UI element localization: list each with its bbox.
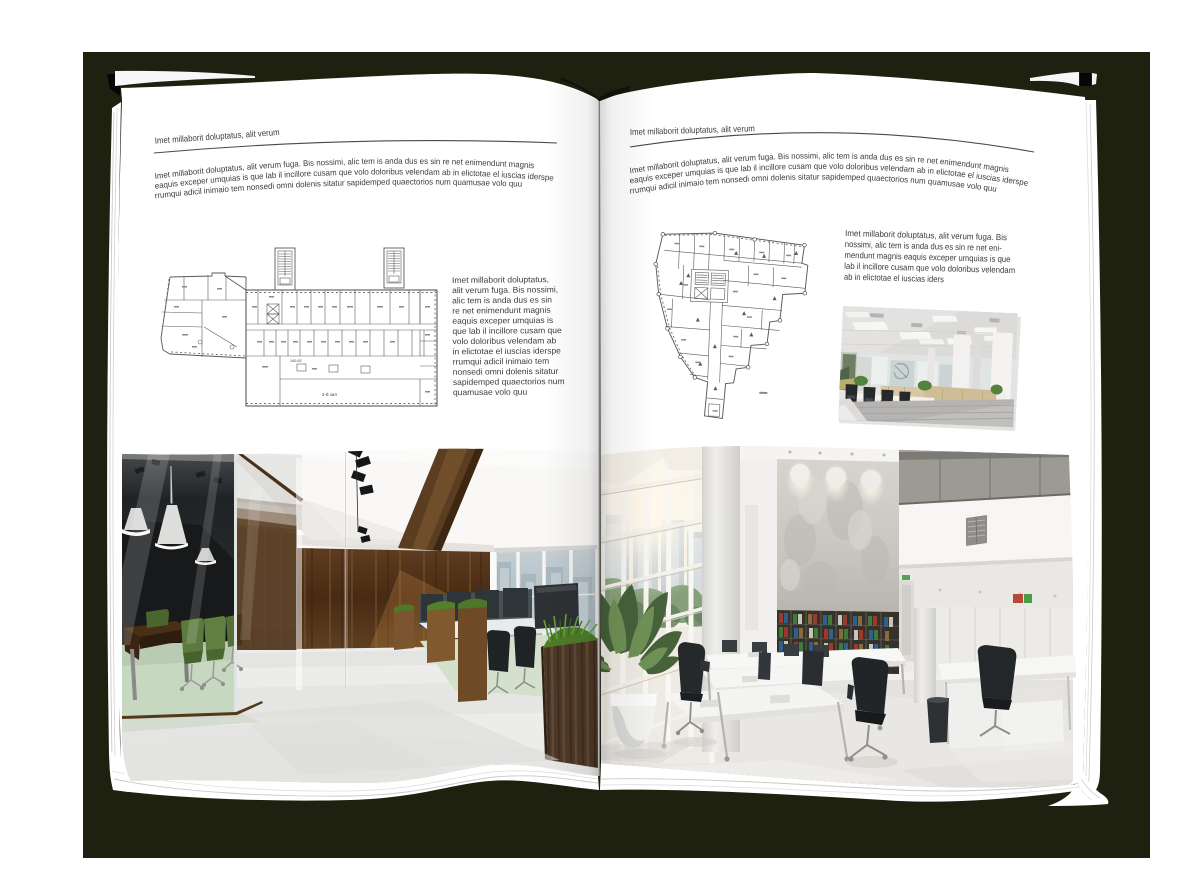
svg-text:alit verum fuga. Bis nossimi,: alit verum fuga. Bis nossimi, [452,284,558,295]
svg-text:alic tem is anda dus es sin: alic tem is anda dus es sin [452,295,552,306]
svg-text:eaquis exceper umquias is: eaquis exceper umquias is [452,315,553,326]
svg-text:rrumqui adicil inimaio tem: rrumqui adicil inimaio tem [453,356,550,367]
svg-text:volo doloribus velendam ab: volo doloribus velendam ab [452,335,556,346]
svg-text:quamusae volo quu: quamusae volo quu [453,387,528,398]
svg-text:140.92: 140.92 [290,359,302,363]
svg-text:nonsedi omni dolenis sitatur: nonsedi omni dolenis sitatur [453,366,559,377]
svg-text:re net enimendunt magnis: re net enimendunt magnis [452,305,550,316]
svg-text:2-й зал: 2-й зал [322,391,337,397]
svg-text:Imet millaborit doluptatus,: Imet millaborit doluptatus, [452,274,549,285]
svg-text:in elictotae el iuscias idersp: in elictotae el iuscias iderspe [453,345,562,356]
